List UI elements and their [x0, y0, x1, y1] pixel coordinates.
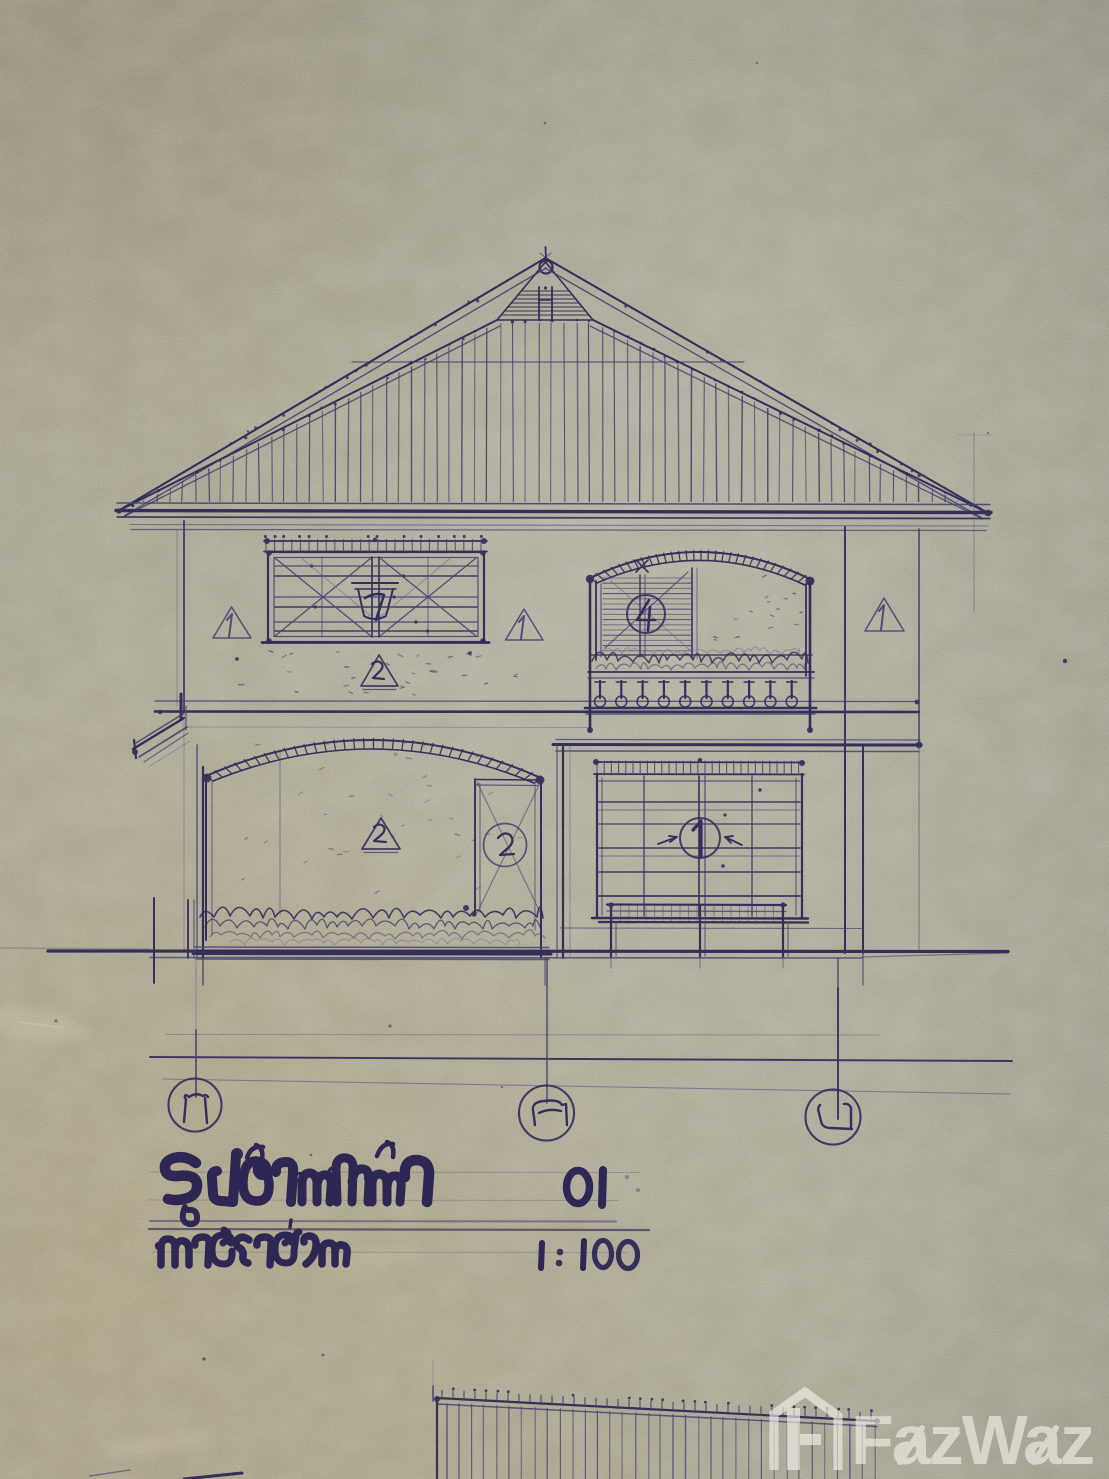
svg-text:FazWaz: FazWaz [851, 1401, 1093, 1479]
